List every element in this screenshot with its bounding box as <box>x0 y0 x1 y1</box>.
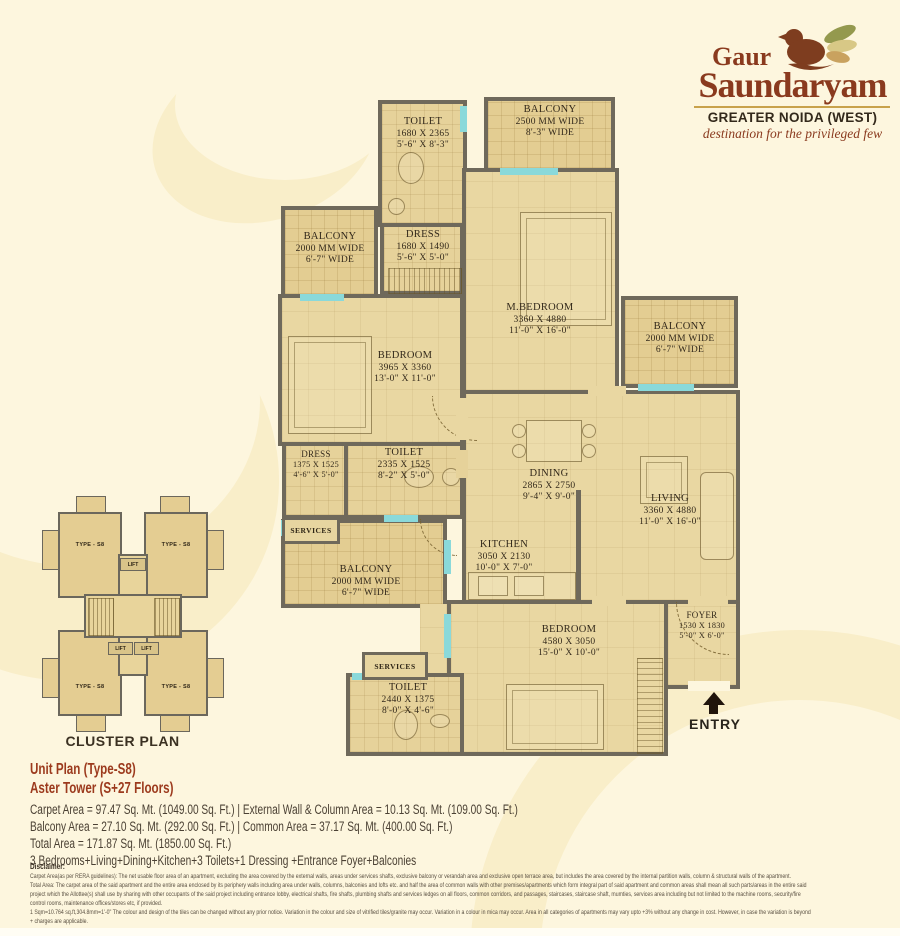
services-label: SERVICES <box>290 526 331 535</box>
disclaimer-line: project which the Allottee(s) shall use … <box>30 890 897 899</box>
area-line-balcony: Balcony Area = 27.10 Sq. Mt. (292.00 Sq.… <box>30 818 900 835</box>
disclaimer-line: Total Area: The carpet area of the said … <box>30 881 897 890</box>
cluster-wing <box>206 658 224 698</box>
dining-table <box>526 420 582 462</box>
cluster-lift-right: LIFT <box>134 642 159 655</box>
bed-bottom-mattress <box>512 690 598 744</box>
cluster-plan-title: CLUSTER PLAN <box>40 733 205 749</box>
cluster-unit-type-label: TYPE - S8 <box>144 684 208 690</box>
disclaimer-line: + charges are applicable. <box>30 917 897 926</box>
window-balcony-left <box>300 294 344 301</box>
tower-subheading: Aster Tower (S+27 Floors) <box>30 779 900 798</box>
kitchen-sink <box>478 576 508 596</box>
logo-location: GREATER NOIDA (WEST) <box>690 110 895 125</box>
label-dining: DINING2865 X 27509'-4" X 9'-0" <box>493 468 605 504</box>
cluster-unit-type-label: TYPE - S8 <box>144 542 208 548</box>
cluster-lift-top: LIFT <box>120 558 146 571</box>
disclaimer-line: 1 Sqm=10.764 sq.ft,304.8mm=1'-0" The col… <box>30 908 897 917</box>
label-balcony-top: BALCONY2500 MM WIDE8'-3" WIDE <box>488 104 612 140</box>
cluster-wing <box>76 714 106 732</box>
services-box-left: SERVICES <box>282 517 340 544</box>
disclaimer-line: control rooms, maintenance offices/store… <box>30 899 897 908</box>
door-opening-mbedroom <box>588 386 626 396</box>
label-bedroom-left: BEDROOM3965 X 336013'-0" X 11'-0" <box>330 350 480 386</box>
disclaimer-title: Disclaimer: <box>30 861 897 872</box>
dining-chair <box>512 444 526 458</box>
cluster-staircase-right <box>154 598 180 636</box>
label-balcony-left: BALCONY2000 MM WIDE6'-7" WIDE <box>286 231 374 267</box>
door-opening-bedroom-b <box>592 596 626 606</box>
feather-tan <box>825 49 851 65</box>
label-toilet-top: TOILET1680 X 23655'-6" X 8'-3" <box>380 116 466 152</box>
logo-divider <box>694 106 890 108</box>
unit-details: Unit Plan (Type-S8) Aster Tower (S+27 Fl… <box>30 760 900 869</box>
brand-main-text: Saundaryam <box>690 64 895 106</box>
bed-bottom <box>506 684 604 750</box>
label-dress-mid: DRESS1375 X 15254'-6" X 5'-0" <box>284 449 348 480</box>
kitchen-partition-wall <box>576 490 581 604</box>
dining-chair <box>512 424 526 438</box>
area-line-carpet: Carpet Area = 97.47 Sq. Mt. (1049.00 Sq.… <box>30 801 900 818</box>
label-balcony-right: BALCONY2000 MM WIDE6'-7" WIDE <box>626 321 734 357</box>
entry-arrow-stem <box>709 705 718 714</box>
label-master-bedroom: M.BEDROOM3360 X 488011'-0" X 16'-0" <box>468 302 612 338</box>
door-opening-bedroom-l <box>456 398 468 440</box>
bird-body <box>787 39 825 65</box>
dining-chair <box>582 424 596 438</box>
label-dress-top: DRESS1680 X 14905'-6" X 5'-0" <box>384 229 462 265</box>
cluster-wing <box>160 714 190 732</box>
label-foyer: FOYER1530 X 18305'-0" X 6'-0" <box>662 610 742 641</box>
entry-arrow-icon <box>703 692 725 705</box>
brochure-page: Gaur Saundaryam GREATER NOIDA (WEST) des… <box>0 0 900 936</box>
disclaimer-block: Disclaimer: Carpet Area(as per RERA guid… <box>30 861 897 926</box>
wc-toilet-top <box>398 152 424 184</box>
disclaimer-line: Carpet Area(as per RERA guidelines): The… <box>30 872 897 881</box>
area-line-total: Total Area = 171.87 Sq. Mt. (1850.00 Sq.… <box>30 835 900 852</box>
cluster-unit-top-right <box>144 512 208 598</box>
label-toilet-mid: TOILET2335 X 15258'-2" X 5'-0" <box>348 447 460 483</box>
entry-opening <box>688 681 730 691</box>
label-toilet-bottom: TOILET2440 X 13758'-0" X 4'-6" <box>354 682 462 718</box>
services-box-bottom: SERVICES <box>362 652 428 680</box>
window-balcony-bottom <box>444 614 451 658</box>
cluster-plan: LIFT LIFT LIFT TYPE - S8 TYPE - S8 TYPE … <box>32 496 234 732</box>
label-balcony-bottom: BALCONY2000 MM WIDE6'-7" WIDE <box>302 564 430 600</box>
label-kitchen: KITCHEN3050 X 213010'-0" X 7'-0" <box>448 539 560 575</box>
cluster-unit-top-left <box>58 512 122 598</box>
entry-label: ENTRY <box>686 716 744 732</box>
cluster-staircase-left <box>88 598 114 636</box>
wardrobe-dress-top <box>388 268 462 294</box>
cluster-unit-type-label: TYPE - S8 <box>58 542 122 548</box>
services-label: SERVICES <box>374 662 415 671</box>
logo-tagline: destination for the privileged few <box>690 126 895 142</box>
unit-plan-heading: Unit Plan (Type-S8) <box>30 760 900 779</box>
label-bedroom-bottom: BEDROOM4580 X 305015'-0" X 10'-0" <box>494 624 644 660</box>
window-balcony-top <box>500 168 558 175</box>
brand-logo: Gaur Saundaryam GREATER NOIDA (WEST) des… <box>690 20 895 140</box>
window-toilet-mid <box>384 515 418 522</box>
window-balcony-right <box>638 384 694 391</box>
bird-beak <box>778 33 788 41</box>
cluster-wing <box>206 530 224 570</box>
door-opening-foyer <box>688 596 728 606</box>
dining-chair <box>582 444 596 458</box>
cluster-unit-type-label: TYPE - S8 <box>58 684 122 690</box>
basin-toilet-top <box>388 198 405 215</box>
kitchen-hob <box>514 576 544 596</box>
label-living: LIVING3360 X 488011'-0" X 16'-0" <box>606 493 734 529</box>
services-shaft-hatch <box>637 658 663 754</box>
cluster-lift-left: LIFT <box>108 642 133 655</box>
